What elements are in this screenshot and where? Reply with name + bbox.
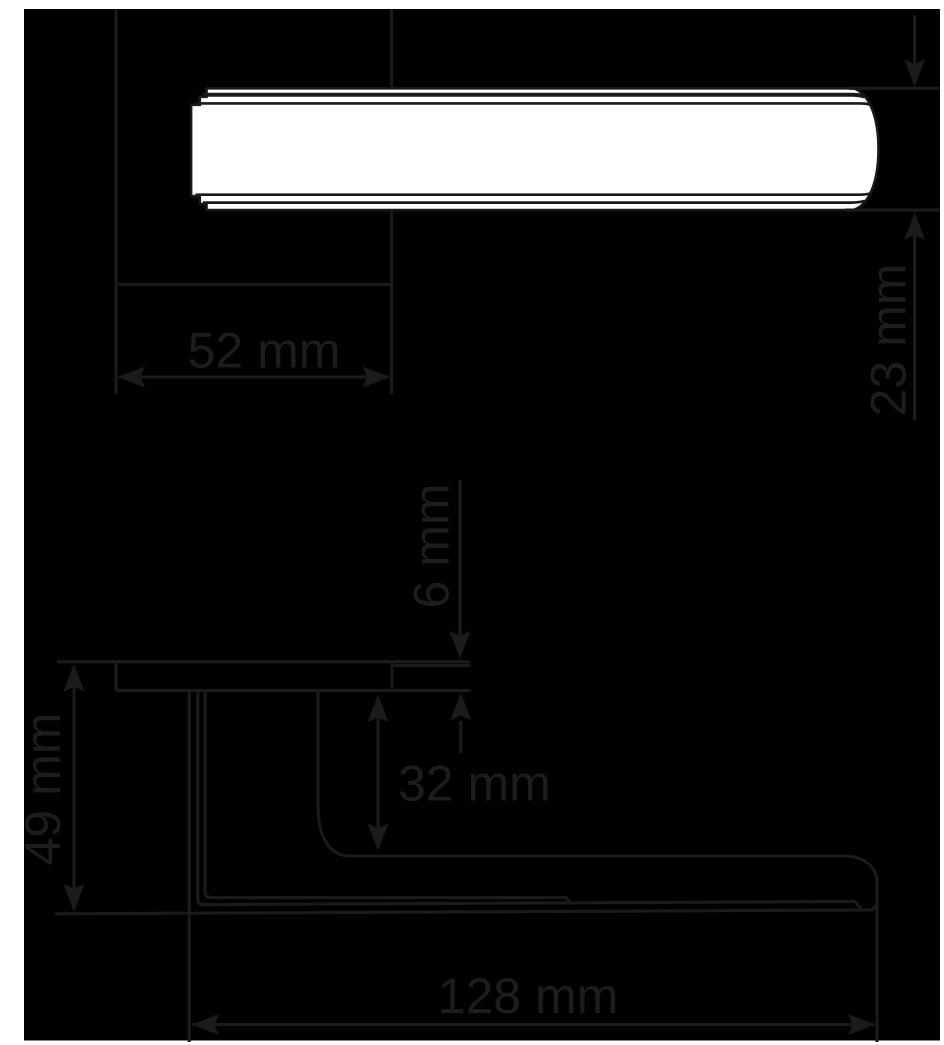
svg-text:6 mm: 6 mm: [404, 484, 460, 609]
svg-text:128 mm: 128 mm: [438, 968, 619, 1024]
svg-text:23 mm: 23 mm: [861, 264, 917, 417]
svg-text:49 mm: 49 mm: [15, 713, 71, 866]
svg-text:32 mm: 32 mm: [398, 756, 551, 812]
svg-text:52 mm: 52 mm: [188, 323, 341, 379]
